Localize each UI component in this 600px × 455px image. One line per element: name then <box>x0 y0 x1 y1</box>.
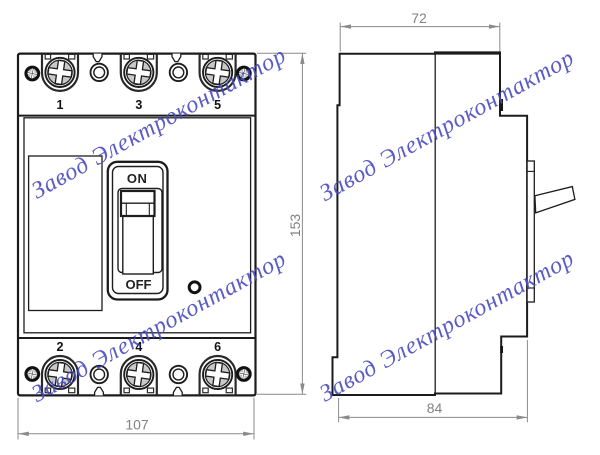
svg-text:72: 72 <box>411 10 427 26</box>
svg-text:ON: ON <box>127 171 148 186</box>
svg-text:OFF: OFF <box>126 277 152 292</box>
svg-text:2: 2 <box>57 340 64 354</box>
svg-text:3: 3 <box>135 98 142 112</box>
svg-text:84: 84 <box>427 400 443 416</box>
svg-text:107: 107 <box>125 417 149 433</box>
svg-text:1: 1 <box>57 98 64 112</box>
svg-text:153: 153 <box>287 214 303 238</box>
svg-text:6: 6 <box>214 340 221 354</box>
